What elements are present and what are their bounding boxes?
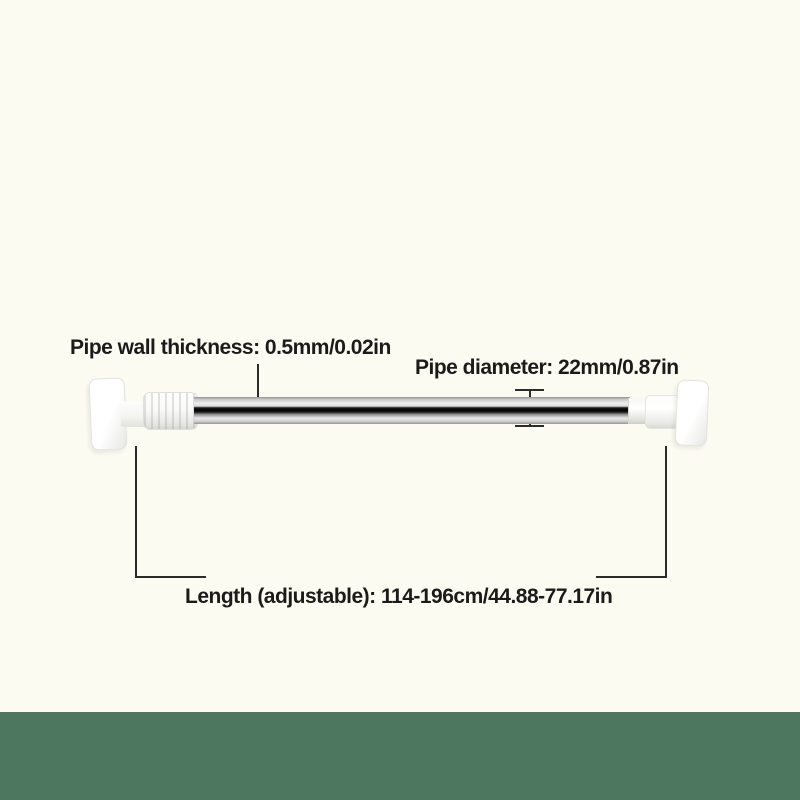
product-annotation-image: Pipe wall thickness: 0.5mm/0.02in Pipe d… [0,0,800,800]
right-mounting-plate [675,379,710,446]
diameter-measure-cap-bottom [515,425,544,427]
pipe-wall-thickness-label: Pipe wall thickness: 0.5mm/0.02in [70,336,391,360]
footer-color-bar [0,712,800,800]
left-adjustment-collar [143,392,198,430]
length-bracket-right-vertical [665,446,667,578]
length-adjustable-label: Length (adjustable): 114-196cm/44.88-77.… [185,585,612,609]
length-bracket-right-foot [596,576,667,578]
length-bracket-left-foot [135,576,206,578]
length-bracket-left-vertical [135,446,137,578]
chrome-pipe [194,397,630,424]
pipe-diameter-label: Pipe diameter: 22mm/0.87in [415,356,679,380]
